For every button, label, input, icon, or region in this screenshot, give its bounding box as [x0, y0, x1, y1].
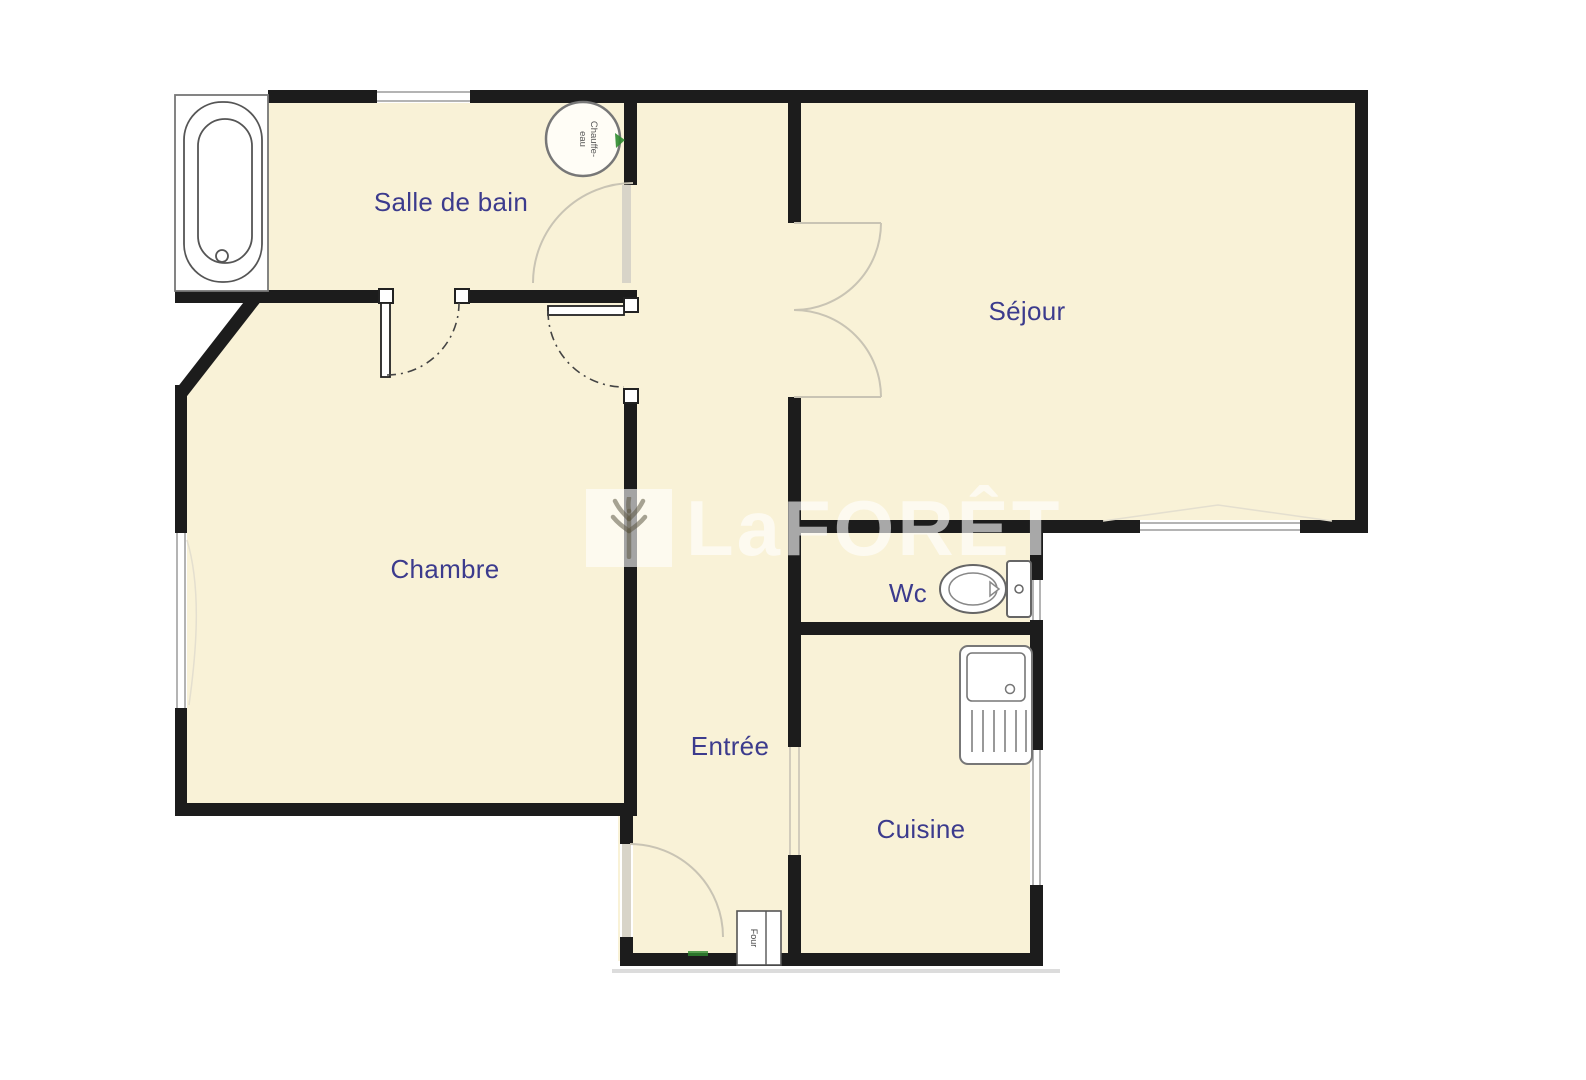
- floor-plan-page: Salle de bain Séjour Chambre Entrée Wc C…: [0, 0, 1586, 1080]
- water-heater-label-line2: eau: [577, 131, 588, 147]
- room-label-salle-de-bain: Salle de bain: [336, 187, 566, 218]
- green-mark-bottom: [688, 951, 708, 956]
- room-label-entree: Entrée: [670, 731, 790, 762]
- bedroom-floor: [181, 296, 630, 810]
- plan-shadow: [612, 969, 1060, 973]
- kitchen-window: [1030, 750, 1043, 885]
- oven-label: Four: [745, 917, 759, 959]
- room-label-sejour: Séjour: [967, 296, 1087, 327]
- room-label-wc: Wc: [878, 578, 938, 609]
- room-label-chambre: Chambre: [375, 554, 515, 585]
- floor-plan-drawing: [0, 0, 1586, 1080]
- water-heater-label-line1: Chauffe-: [588, 121, 599, 157]
- room-label-cuisine: Cuisine: [861, 814, 981, 845]
- kitchen-sink: [960, 646, 1032, 764]
- bathroom-window: [377, 90, 470, 103]
- oven-box: [737, 911, 781, 965]
- bathtub: [175, 95, 268, 291]
- hallway-floor: [618, 96, 794, 961]
- toilet: [940, 561, 1031, 617]
- water-heater-label: Chauffe- eau: [568, 109, 598, 169]
